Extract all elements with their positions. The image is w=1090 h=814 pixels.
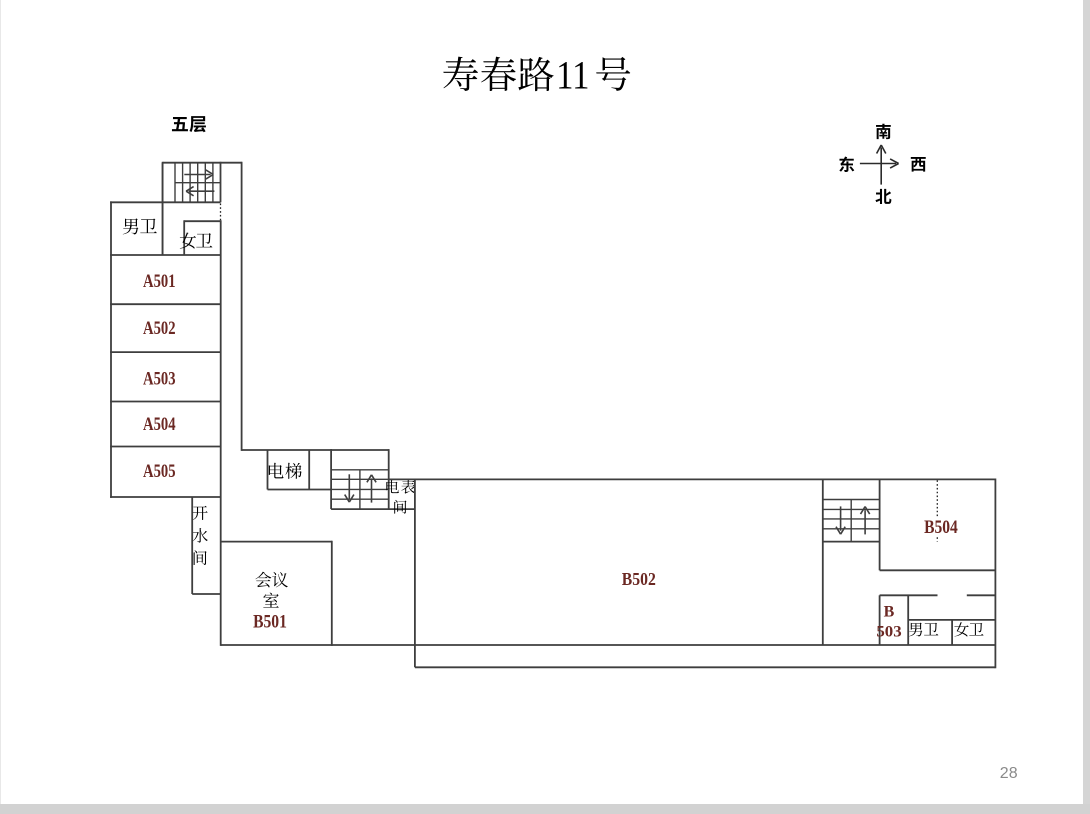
svg-text:A505: A505: [143, 461, 176, 482]
svg-text:503: 503: [876, 624, 901, 641]
svg-text:A502: A502: [143, 318, 176, 339]
svg-text:A501: A501: [143, 271, 176, 292]
svg-text:A503: A503: [143, 369, 176, 390]
svg-text:A504: A504: [143, 414, 176, 435]
svg-text:B501: B501: [253, 611, 287, 632]
svg-text:28: 28: [1000, 765, 1018, 782]
svg-text:B502: B502: [622, 569, 656, 589]
svg-text:B: B: [884, 604, 895, 621]
svg-text:11: 11: [556, 52, 589, 97]
svg-text:B504: B504: [924, 517, 958, 538]
